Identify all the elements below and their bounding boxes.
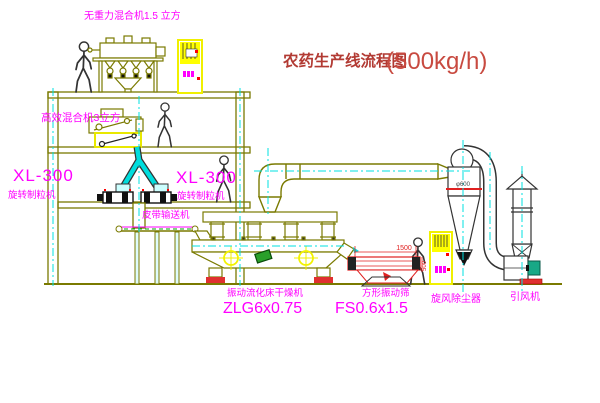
gravity-mixer [88, 36, 165, 92]
label-granulator-right-model: XL-300 [176, 168, 237, 187]
cyclone-red-band [446, 188, 482, 190]
process-flow-diagram: 农药生产线流程图 (500kg/h) 无重力混合机1.5 立方 高效混合机3立方… [0, 0, 600, 403]
label-granulator-left-model: XL-300 [13, 166, 74, 185]
control-cabinet-2 [430, 232, 452, 284]
screen-deck [348, 257, 420, 270]
granulator-left [97, 184, 133, 203]
dim-screen-height: 500 [422, 260, 428, 271]
fan-base [520, 279, 542, 284]
feed-chute [195, 231, 213, 240]
fluid-bed-dryer [192, 212, 359, 283]
dim-screen-width: 1500 [396, 245, 412, 252]
label-dryer-model: ZLG6x0.75 [223, 300, 302, 317]
label-high-efficiency-mixer: 高效混合机3立方 [41, 111, 120, 124]
label-screen-model: FS0.6x1.5 [335, 300, 408, 317]
floor-slab-middle [48, 147, 250, 153]
dosing-valves [105, 61, 154, 78]
dryer-hood [203, 212, 337, 222]
label-dryer-name: 振动流化床干燥机 [227, 287, 304, 299]
label-cyclone: 旋风除尘器 [431, 292, 481, 305]
dryer-foot-pad [206, 277, 225, 283]
label-fan: 引风机 [510, 290, 540, 303]
fan-motor [528, 261, 540, 275]
title-capacity: (500kg/h) [386, 48, 487, 75]
floor-slab-top [48, 92, 250, 98]
cyclone-discharge-cone [457, 252, 471, 266]
duct-funnel [259, 197, 281, 212]
induced-draft-fan [504, 256, 542, 284]
label-gravity-mixer: 无重力混合机1.5 立方 [84, 9, 181, 22]
granulator-right [141, 184, 177, 203]
control-cabinet-1 [178, 40, 202, 93]
diagram-drawing: 农药生产线流程图 (500kg/h) 无重力混合机1.5 立方 高效混合机3立方… [0, 0, 600, 403]
label-granulator-left-name: 旋转制粒机 [8, 189, 56, 201]
dryer-foot-pad [314, 277, 333, 283]
worker-figure [158, 103, 171, 147]
label-granulator-right-name: 旋转制粒机 [177, 190, 225, 202]
label-belt-conveyor: 皮带输送机 [142, 209, 190, 221]
dim-cyclone-diameter: φ600 [456, 182, 471, 188]
label-screen-name: 方形振动筛 [362, 287, 410, 299]
